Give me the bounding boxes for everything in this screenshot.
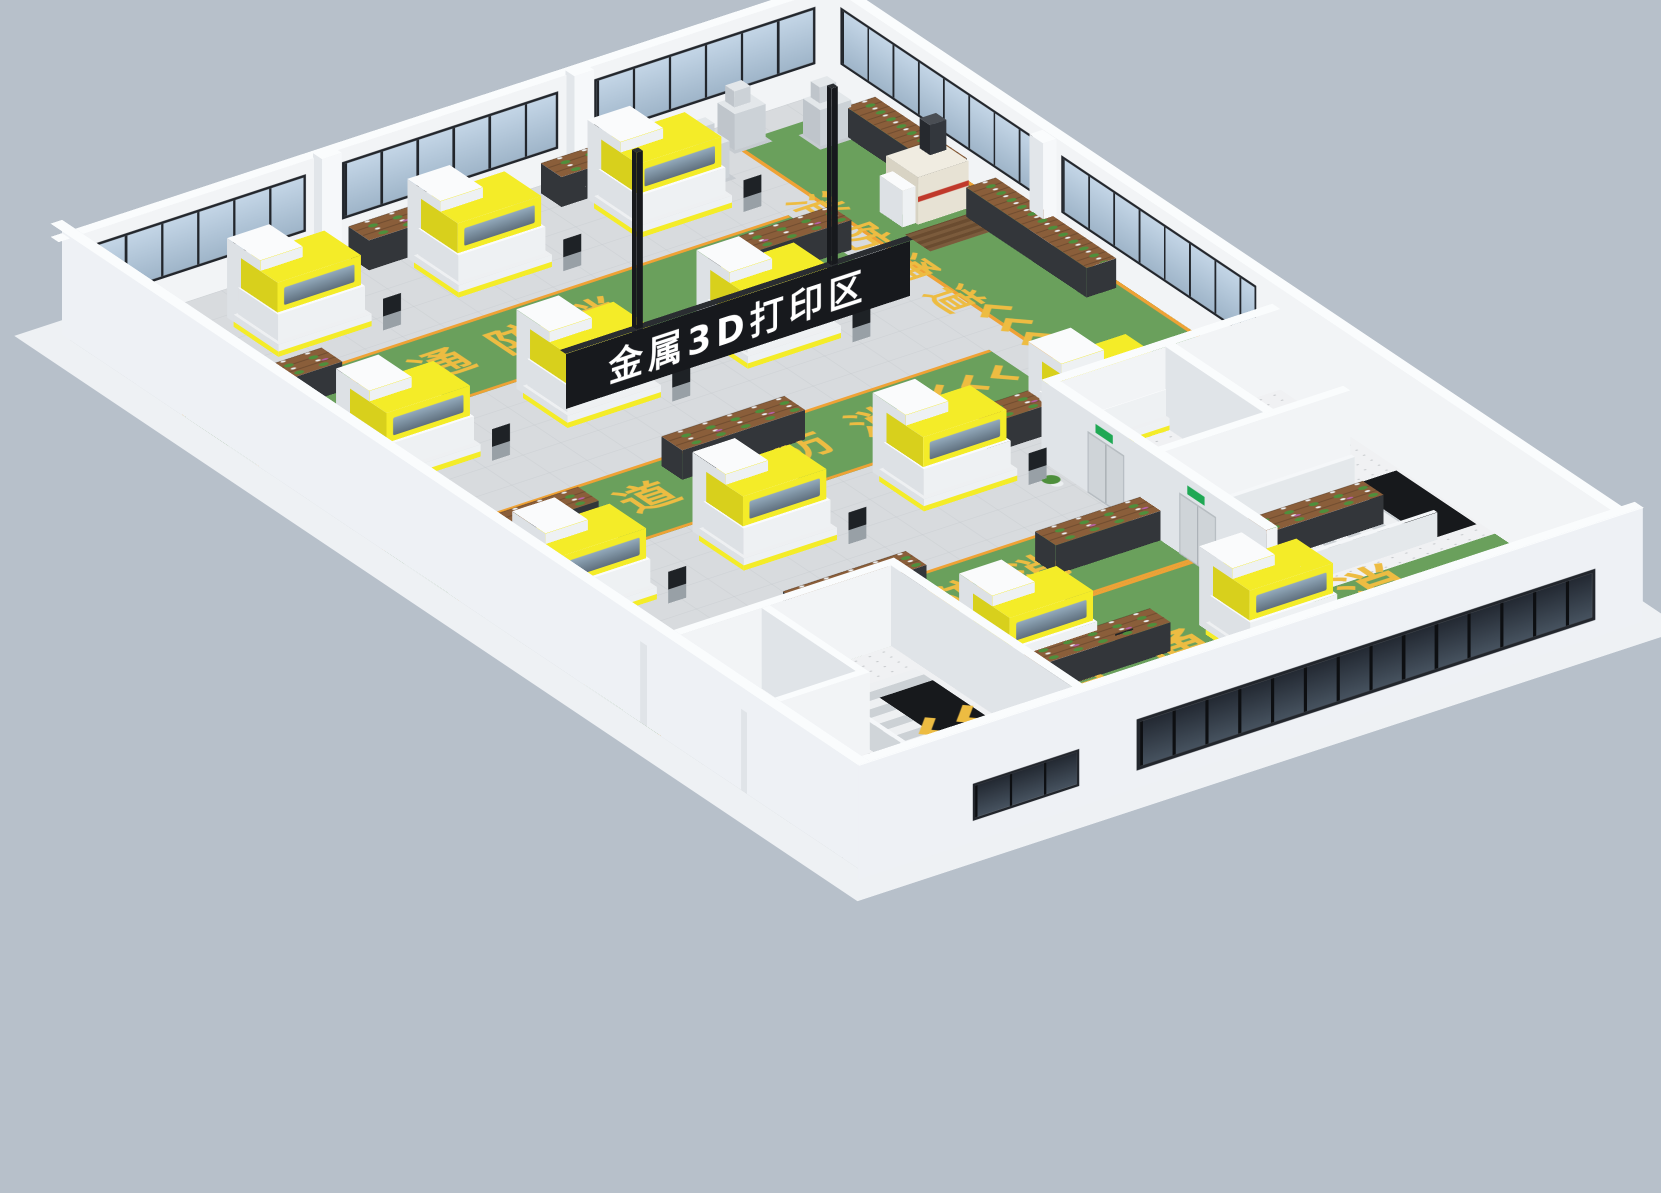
sign-pole-front bbox=[831, 87, 838, 275]
sign-pole-front bbox=[636, 151, 643, 339]
metal-3d-printing-zone-scene: 道通防消道通防消道通防消道通防消消防通道金属3D打印区 bbox=[70, 90, 1623, 871]
printer-console bbox=[383, 293, 401, 331]
printer-console bbox=[848, 507, 866, 545]
factory-3d-render: 道通防消道通防消道通防消道通防消消防通道金属3D打印区 bbox=[0, 0, 1661, 1193]
small-window-outer bbox=[973, 749, 1079, 821]
red-stripe bbox=[918, 180, 969, 202]
chevron-arrow-icon bbox=[990, 365, 1022, 380]
printer-console bbox=[743, 174, 761, 212]
printer-console bbox=[668, 566, 686, 604]
inspection-machine-table-front bbox=[903, 187, 916, 228]
printer-console bbox=[492, 423, 510, 461]
chevron-arrow-icon bbox=[1001, 318, 1033, 333]
printer-console bbox=[563, 234, 581, 272]
